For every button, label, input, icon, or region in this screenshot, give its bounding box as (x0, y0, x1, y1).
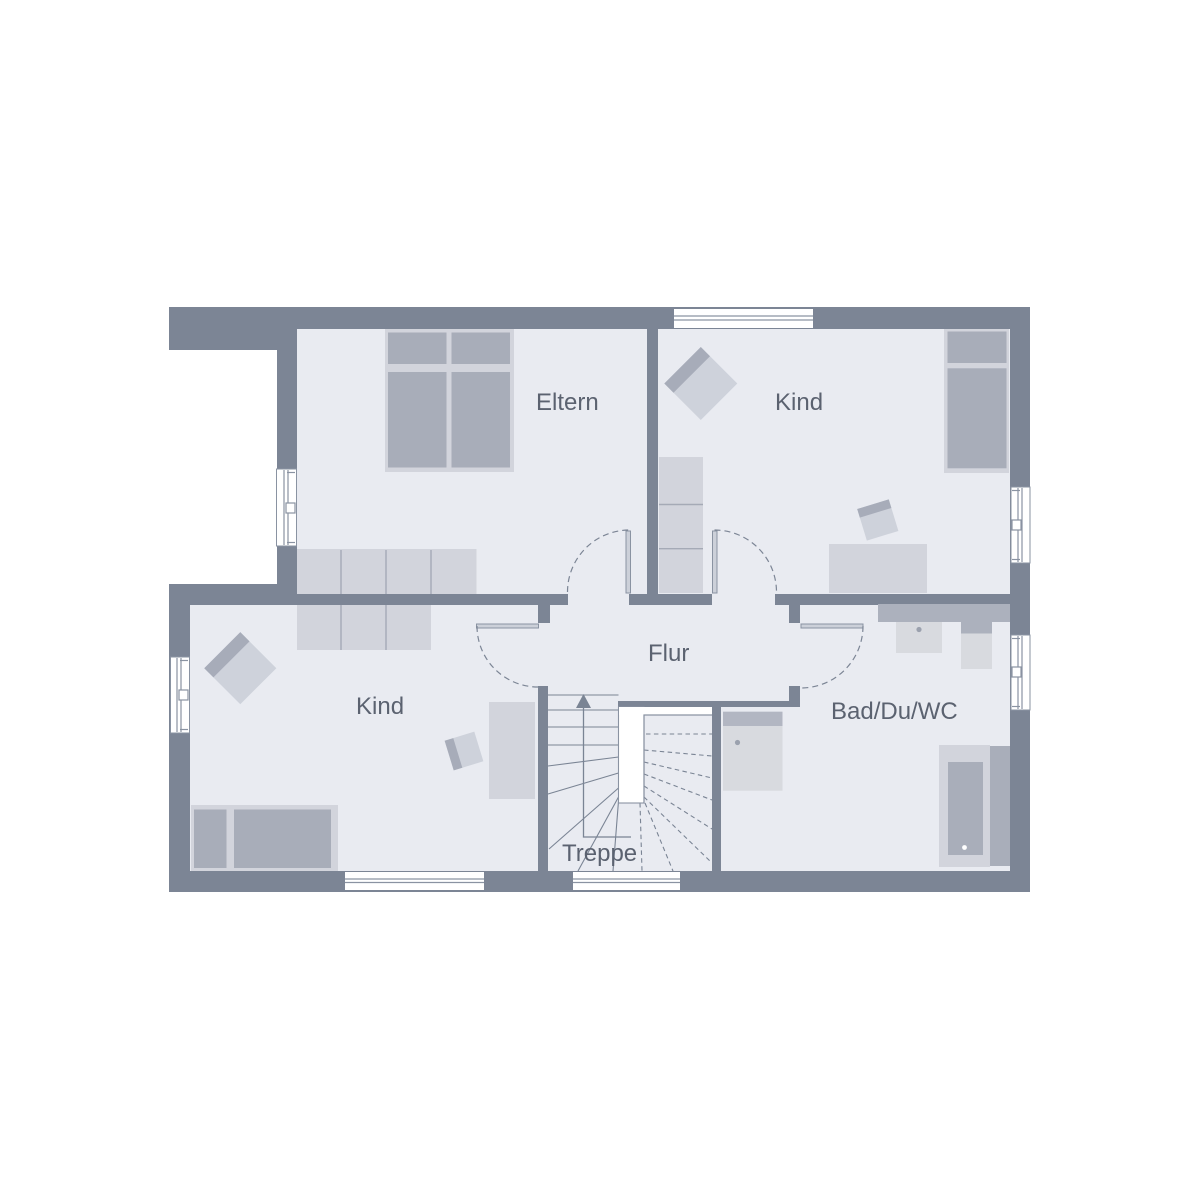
svg-text:Eltern: Eltern (536, 389, 599, 416)
svg-text:Bad/Du/WC: Bad/Du/WC (831, 698, 958, 725)
svg-text:Kind: Kind (356, 693, 404, 720)
svg-text:Flur: Flur (648, 640, 689, 667)
svg-text:Treppe: Treppe (562, 840, 637, 867)
svg-text:Kind: Kind (775, 389, 823, 416)
